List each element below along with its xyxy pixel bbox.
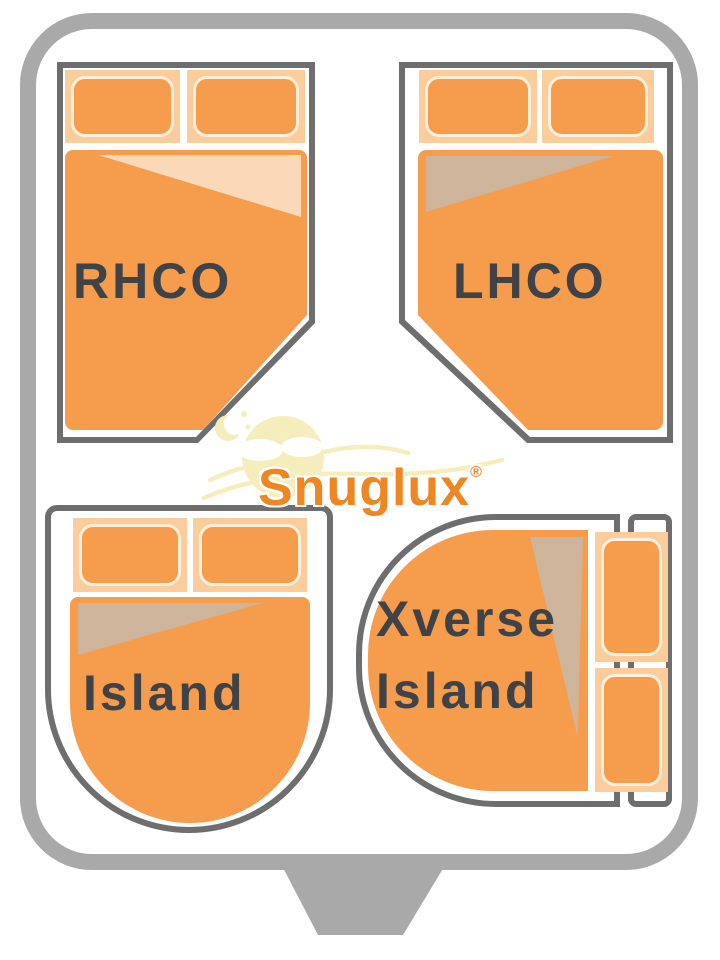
pillow-icon xyxy=(548,76,648,137)
pillow-icon xyxy=(601,538,662,656)
pillow-block xyxy=(187,70,305,143)
pillow-block xyxy=(65,70,180,143)
pillow-icon xyxy=(71,76,174,137)
bed-label-lhco: LHCO xyxy=(453,256,607,306)
pillow-block xyxy=(73,518,187,592)
crescent-moon-icon xyxy=(215,411,251,441)
bed-options-diagram: RHCO LHCO Island xyxy=(0,0,720,960)
pillow-icon xyxy=(79,524,181,586)
registered-trademark-icon: ® xyxy=(470,464,482,481)
pillow-block xyxy=(595,532,668,662)
bed-label-island: Island xyxy=(83,668,245,718)
pillow-icon xyxy=(199,524,301,586)
pillow-block xyxy=(193,518,307,592)
bed-label-xverse-line2: Island xyxy=(376,655,558,727)
pillow-icon xyxy=(193,76,299,137)
brand-wordmark: Snuglux® xyxy=(258,447,482,514)
pin-tail xyxy=(280,862,447,935)
folded-sheet-icon xyxy=(426,156,613,212)
bed-diagram-island: Island xyxy=(45,505,333,833)
pillow-block xyxy=(419,70,537,143)
pillow-icon xyxy=(601,674,662,786)
bed-label-xverse: Xverse Island xyxy=(376,583,558,727)
folded-sheet-icon xyxy=(78,603,263,655)
pillow-block xyxy=(595,668,668,792)
folded-sheet-icon xyxy=(98,155,301,217)
pillow-icon xyxy=(425,76,531,137)
bed-label-xverse-line1: Xverse xyxy=(376,583,558,655)
bed-label-rhco: RHCO xyxy=(73,256,232,306)
brand-name: Snuglux xyxy=(258,459,470,517)
pillow-block xyxy=(542,70,654,143)
